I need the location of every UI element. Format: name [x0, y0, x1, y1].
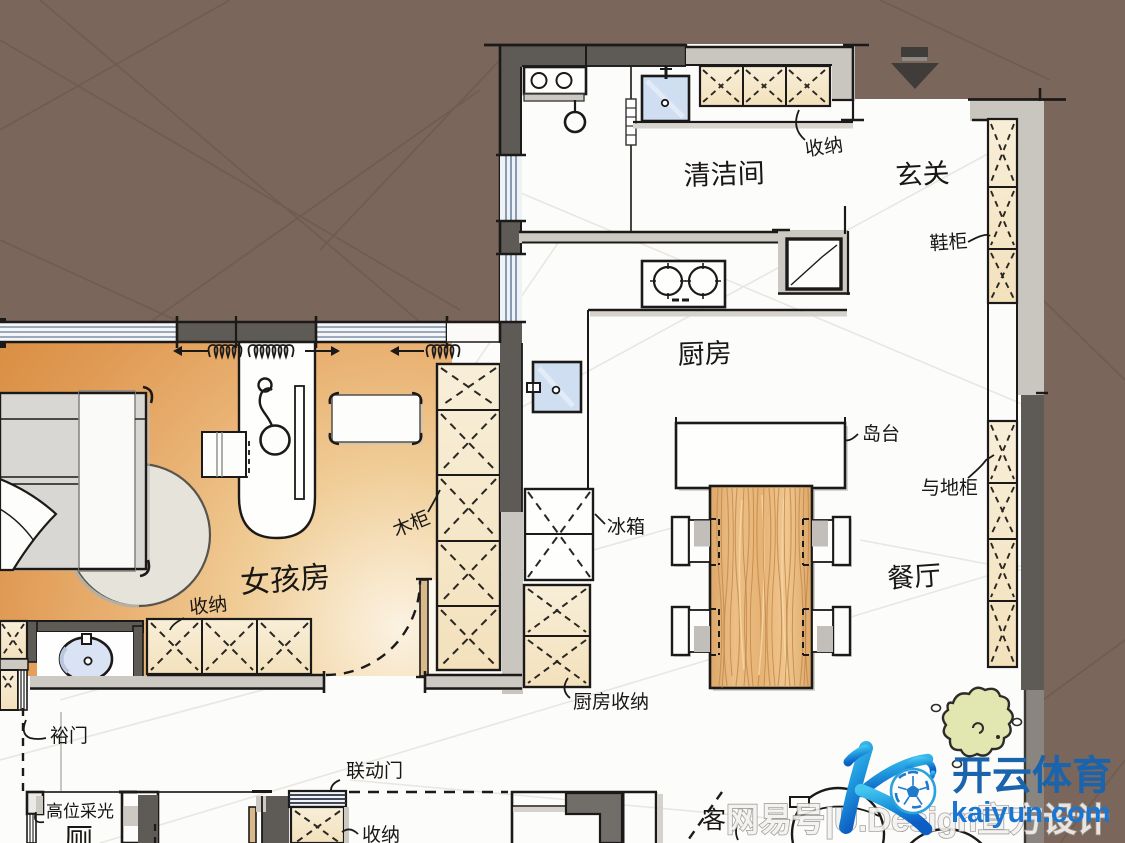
svg-text:联动门: 联动门 — [346, 760, 403, 782]
svg-text:玄关: 玄关 — [895, 158, 950, 191]
svg-text:厨房: 厨房 — [677, 338, 732, 370]
svg-text:客: 客 — [702, 807, 726, 834]
svg-text:冰箱: 冰箱 — [607, 516, 645, 538]
svg-text:餐厅: 餐厅 — [886, 560, 942, 594]
svg-text:裕门: 裕门 — [50, 725, 88, 747]
svg-text:开云体育: 开云体育 — [952, 754, 1112, 798]
svg-text:kaiyun.com: kaiyun.com — [951, 797, 1111, 829]
svg-text:收纳: 收纳 — [188, 593, 228, 619]
svg-text:厨房收纳: 厨房收纳 — [573, 691, 649, 713]
svg-text:鞋柜: 鞋柜 — [929, 230, 968, 255]
svg-text:女孩房: 女孩房 — [239, 561, 331, 600]
svg-text:厕: 厕 — [64, 824, 93, 843]
svg-text:清洁间: 清洁间 — [683, 158, 765, 191]
svg-text:岛台: 岛台 — [862, 423, 900, 445]
svg-text:高位采光: 高位采光 — [46, 802, 114, 821]
svg-text:收纳: 收纳 — [362, 824, 400, 843]
svg-text:与地柜: 与地柜 — [921, 477, 978, 499]
